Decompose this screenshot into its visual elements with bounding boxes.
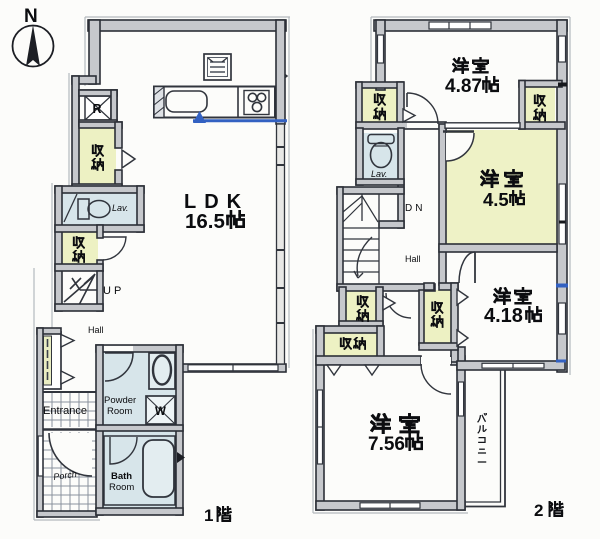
svg-text:Bath: Bath — [111, 471, 132, 482]
svg-text:Room: Room — [109, 482, 134, 493]
svg-text:Powder: Powder — [104, 395, 136, 406]
svg-text:Hall: Hall — [88, 325, 104, 335]
svg-text:1: 1 — [204, 506, 213, 525]
svg-text:UP: UP — [103, 285, 124, 297]
svg-text:Hall: Hall — [405, 254, 421, 264]
svg-text:16.5: 16.5 — [185, 210, 225, 233]
svg-text:Lav.: Lav. — [371, 169, 387, 179]
svg-text:W: W — [155, 406, 166, 418]
svg-text:Room: Room — [107, 406, 132, 417]
svg-text:2: 2 — [534, 501, 543, 520]
svg-text:Entrance: Entrance — [43, 405, 87, 417]
svg-text:N: N — [24, 6, 38, 27]
svg-text:Lav.: Lav. — [112, 203, 128, 213]
svg-text:R: R — [93, 102, 102, 116]
svg-text:7.56: 7.56 — [368, 434, 405, 455]
svg-text:DN: DN — [405, 203, 425, 214]
svg-text:4.18: 4.18 — [484, 305, 523, 327]
svg-text:4.87: 4.87 — [445, 76, 482, 97]
svg-text:4.5: 4.5 — [483, 189, 509, 210]
